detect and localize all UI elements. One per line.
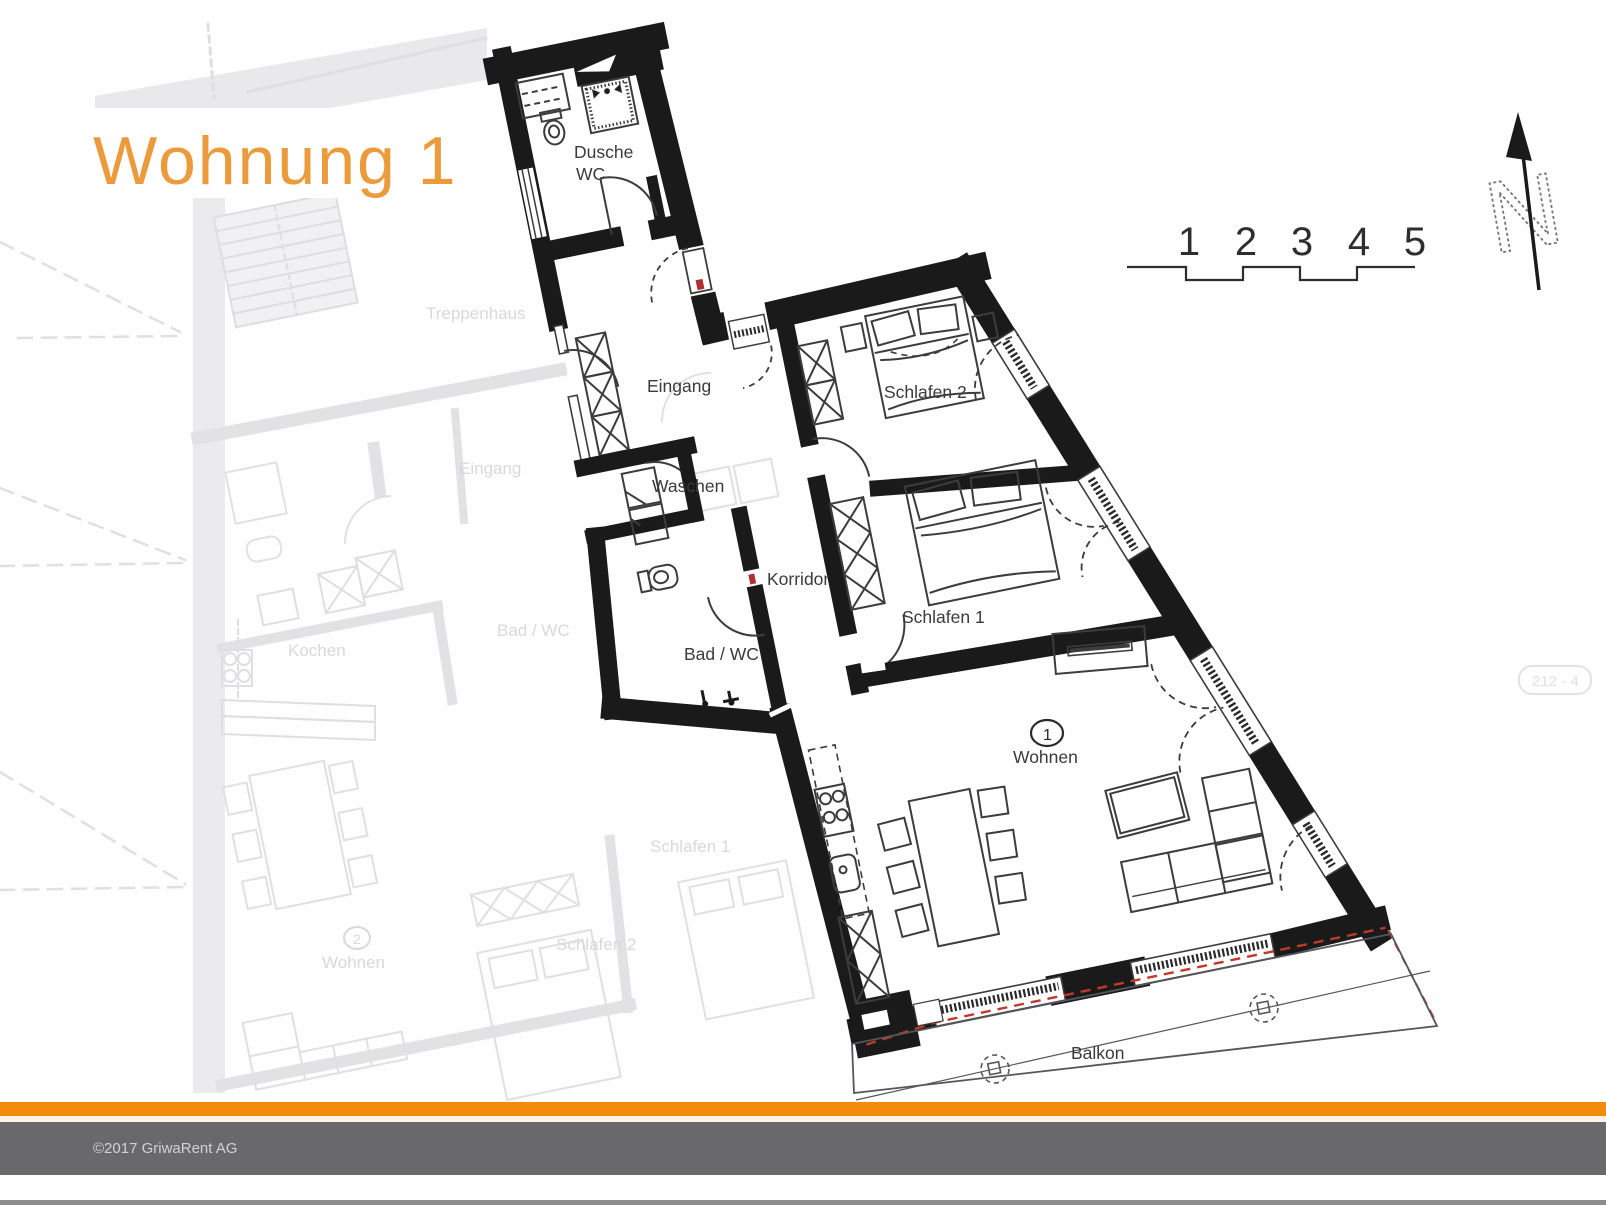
svg-text:1: 1 [1178, 220, 1200, 264]
svg-text:Schlafen 2: Schlafen 2 [556, 935, 636, 954]
svg-text:212 - 4: 212 - 4 [1532, 673, 1579, 690]
svg-text:Wohnung 1: Wohnung 1 [93, 123, 458, 199]
svg-text:Wohnen: Wohnen [322, 953, 385, 972]
svg-text:Korridor: Korridor [767, 569, 829, 589]
svg-text:Bad / WC: Bad / WC [497, 621, 570, 640]
svg-text:Wohnen: Wohnen [1013, 747, 1078, 767]
svg-text:2: 2 [1235, 220, 1257, 264]
svg-text:Eingang: Eingang [459, 459, 521, 478]
svg-text:Eingang: Eingang [647, 376, 711, 396]
svg-text:Schlafen 1: Schlafen 1 [902, 607, 985, 627]
svg-text:3: 3 [1291, 220, 1313, 264]
svg-text:4: 4 [1348, 220, 1370, 264]
svg-text:Schlafen 2: Schlafen 2 [884, 382, 967, 402]
svg-text:5: 5 [1404, 220, 1426, 264]
svg-text:2: 2 [353, 931, 361, 947]
svg-text:Waschen: Waschen [652, 476, 724, 496]
svg-text:Dusche: Dusche [574, 142, 633, 162]
svg-text:WC: WC [576, 164, 605, 184]
svg-text:Balkon: Balkon [1071, 1043, 1125, 1063]
svg-text:Kochen: Kochen [288, 641, 346, 660]
svg-text:Schlafen 1: Schlafen 1 [650, 837, 730, 856]
svg-text:©2017 GriwaRent AG: ©2017 GriwaRent AG [93, 1140, 237, 1157]
svg-text:1: 1 [1043, 727, 1052, 744]
svg-text:Treppenhaus: Treppenhaus [426, 304, 526, 323]
svg-text:Bad / WC: Bad / WC [684, 644, 759, 664]
